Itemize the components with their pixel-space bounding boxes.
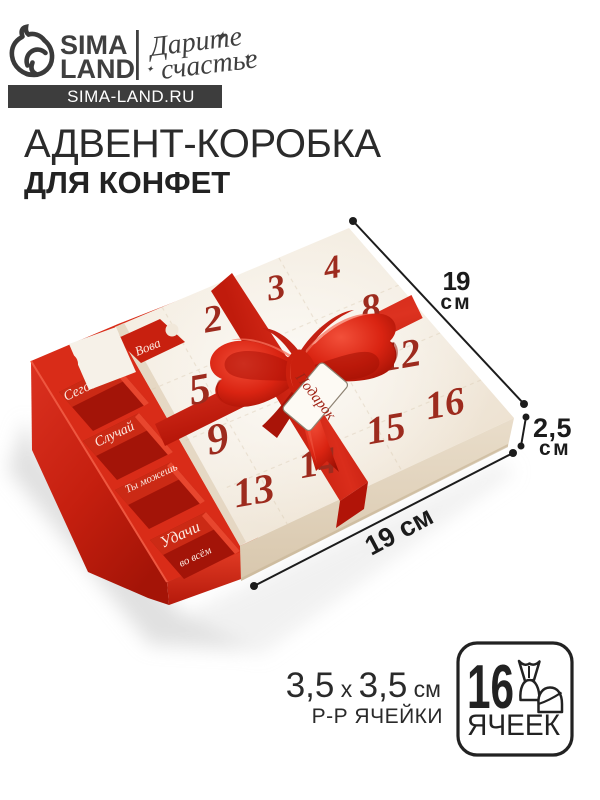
svg-text:15: 15 — [363, 404, 409, 453]
svg-text:13: 13 — [229, 464, 277, 516]
svg-text:см: см — [539, 437, 571, 460]
svg-text:см: см — [440, 291, 471, 314]
svg-text:ЯЧЕЕК: ЯЧЕЕК — [467, 709, 560, 742]
svg-text:16: 16 — [422, 379, 468, 428]
